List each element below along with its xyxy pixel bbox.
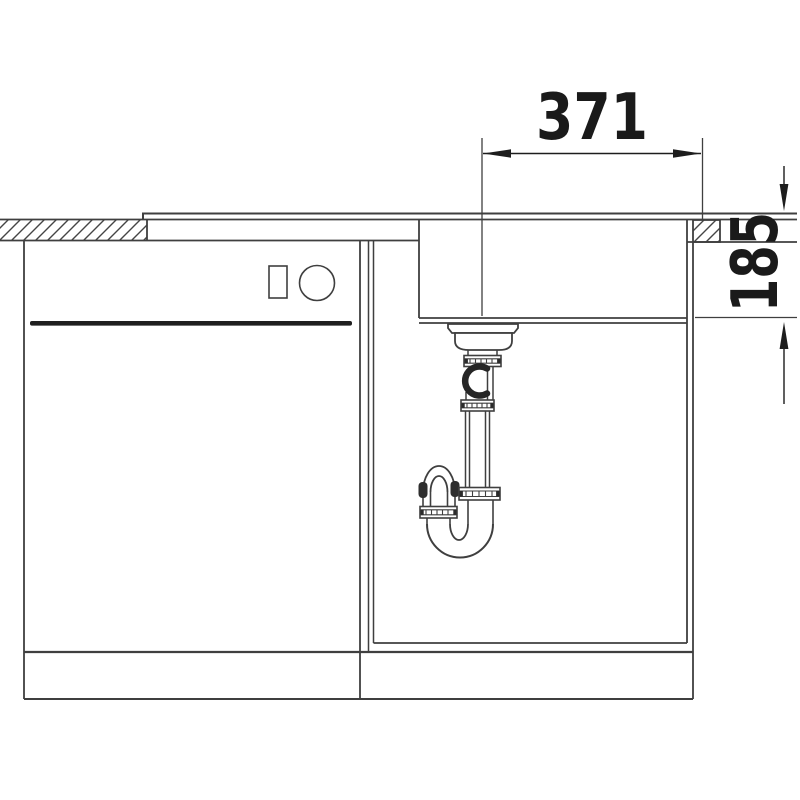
countertop-right-section [693,220,720,242]
control-button-square [269,266,287,298]
compression-nut-2 [461,400,494,411]
drain-strainer-body [455,333,512,350]
arrowhead-right [673,149,701,157]
diagram-canvas: 371 185 [0,0,800,800]
left-cabinet [24,241,360,700]
dimension-label-185: 185 [719,212,793,312]
ball-joint-clip-right [451,481,460,497]
arrowhead-up [780,322,789,349]
compression-nut-4 [420,507,457,519]
dimension-label-371: 371 [536,81,648,155]
dimension-depth-185: 185 [695,166,797,404]
sink-dimension-diagram: 371 185 [0,0,800,800]
control-knob-circle [300,266,335,301]
cabinet-plinth [24,652,693,699]
ball-joint-clip-left [419,482,428,498]
dimension-width-371: 371 [482,81,703,316]
right-cabinet [369,241,694,700]
compression-nut-3 [459,488,500,501]
trap-loop [419,466,460,507]
arrowhead-left [483,149,511,157]
countertop [0,214,797,243]
drawer-divider-line [30,321,352,326]
base-cabinets [24,241,693,700]
ball-joint-elbow [465,367,487,396]
drain-assembly [419,324,519,558]
sink-basin [419,220,687,644]
drain-flange [448,324,518,333]
countertop-left-section [0,220,147,241]
drain-pipe [466,411,490,488]
arrowhead-down [780,184,789,211]
